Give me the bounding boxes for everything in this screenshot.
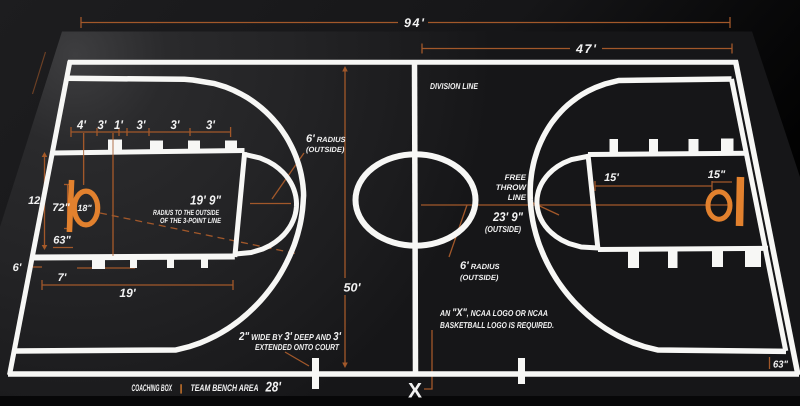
svg-text:12': 12' [28,195,43,207]
svg-text:3': 3' [171,118,181,132]
svg-text:28': 28' [265,379,282,395]
svg-text:50': 50' [344,281,362,295]
svg-text:TEAM BENCH AREA: TEAM BENCH AREA [191,383,259,394]
svg-text:63": 63" [773,360,788,371]
svg-text:19' 9": 19' 9" [190,193,222,208]
svg-text:DIVISION LINE: DIVISION LINE [430,81,478,91]
svg-text:94': 94' [404,16,425,30]
svg-text:3': 3' [98,118,108,132]
svg-text:72": 72" [52,202,70,214]
svg-text:15": 15" [708,169,726,181]
svg-text:19': 19' [119,286,136,300]
svg-text:3': 3' [137,118,147,132]
svg-text:6'RADIUS: 6'RADIUS [460,260,500,272]
svg-text:OF THE 3-POINT LINE: OF THE 3-POINT LINE [160,216,222,225]
svg-text:23' 9": 23' 9" [492,210,524,224]
svg-text:THROW: THROW [496,183,528,192]
svg-text:EXTENDED ONTO COURT: EXTENDED ONTO COURT [255,342,340,352]
svg-text:47': 47' [575,42,597,56]
svg-text:(OUTSIDE): (OUTSIDE) [460,273,499,282]
svg-text:15': 15' [604,172,619,184]
svg-text:|: | [180,384,183,395]
svg-text:FREE: FREE [505,173,527,182]
svg-text:6': 6' [13,262,22,274]
svg-text:6'RADIUS: 6'RADIUS [306,133,346,145]
svg-text:BASKETBALL LOGO IS REQUIRED.: BASKETBALL LOGO IS REQUIRED. [440,320,554,330]
svg-text:4': 4' [76,118,87,132]
svg-text:18": 18" [77,203,92,213]
svg-text:AN "X", NCAA LOGO OR NCAA: AN "X", NCAA LOGO OR NCAA [439,307,548,319]
svg-text:COACHING BOX: COACHING BOX [132,383,173,394]
svg-text:X: X [408,380,422,403]
svg-text:63": 63" [53,235,71,247]
svg-text:3': 3' [206,118,216,132]
svg-text:(OUTSIDE): (OUTSIDE) [485,224,521,234]
svg-text:LINE: LINE [508,193,527,202]
svg-text:1': 1' [114,118,124,132]
svg-text:(OUTSIDE): (OUTSIDE) [306,145,345,154]
svg-text:7': 7' [58,272,67,284]
